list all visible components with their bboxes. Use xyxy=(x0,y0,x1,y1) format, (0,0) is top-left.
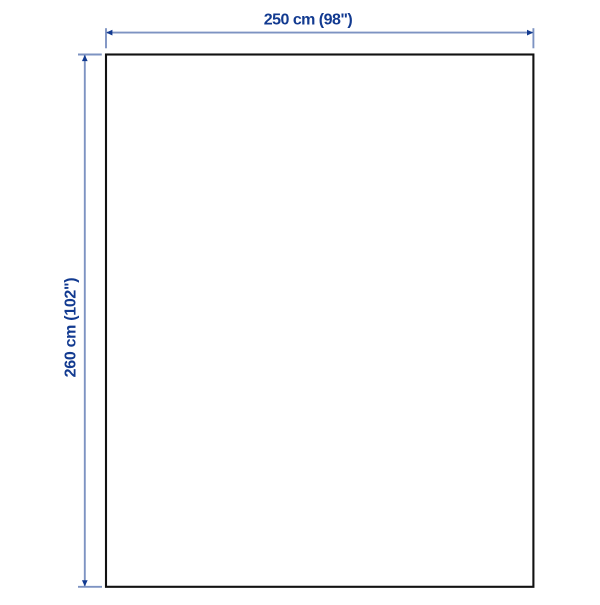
svg-text:260 cm (102"): 260 cm (102") xyxy=(63,278,80,378)
svg-text:250 cm (98"): 250 cm (98") xyxy=(264,11,353,28)
